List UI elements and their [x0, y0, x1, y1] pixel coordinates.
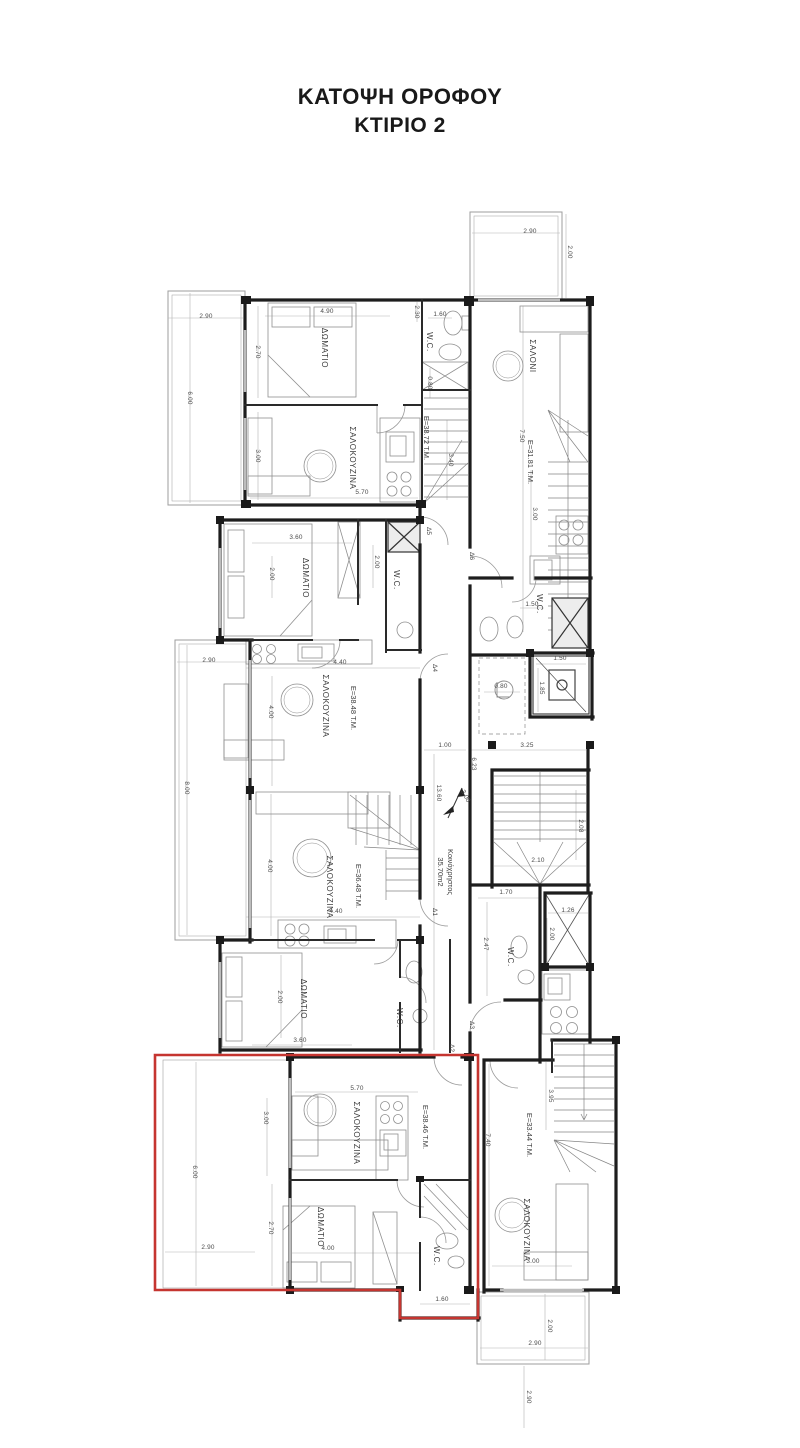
couch [224, 684, 284, 760]
apt3-area-label: Ε=38.48 Τ.Μ. [349, 686, 358, 730]
dim-label: 4.40 [329, 908, 342, 915]
door-label: Δ1 [431, 908, 438, 916]
plan-text-labels: ΔΩΜΑΤΙΟΣΑΛΟΚΟΥΖΙΝΑW.C.Ε=38.72 Τ.Μ.ΣΑΛΟΝΙ… [183, 228, 584, 1404]
table [281, 684, 313, 716]
apt1-wc-label: W.C. [425, 332, 434, 352]
dim-label: 13.60 [435, 785, 442, 802]
dim-label: 1.60 [435, 1296, 448, 1303]
dim-label: 2.00 [276, 990, 283, 1003]
walls-exterior [220, 298, 617, 1320]
dim-label: 3.60 [293, 1037, 306, 1044]
closet [338, 522, 360, 598]
dim-label: 2.90 [199, 313, 212, 320]
kitchen [380, 418, 420, 502]
dim-label: 1.26 [561, 907, 574, 914]
dim-label: 2.08 [577, 819, 584, 832]
dim-label: 3.95 [547, 1089, 554, 1102]
bed [268, 303, 356, 397]
apt5-bedroom-label: ΔΩΜΑΤΙΟ [316, 1207, 325, 1247]
dim-label: 3.00 [526, 1258, 539, 1265]
apt2-area-label: Ε=31.81 Τ.Μ. [526, 440, 535, 484]
dim-label: 2.90 [525, 1390, 532, 1403]
apt4-bedroom-label: ΔΩΜΑΤΙΟ [299, 979, 308, 1019]
dim-label: 2.00 [548, 927, 555, 940]
dim-label: 4.40 [333, 659, 346, 666]
dim-label: 2.90 [201, 1244, 214, 1251]
dim-label: 6.00 [191, 1165, 198, 1178]
dim-label: 2.10 [531, 857, 544, 864]
dim-label: 4.00 [266, 859, 273, 872]
table [304, 1094, 336, 1126]
dim-label: 3.00 [262, 1111, 269, 1124]
dim-label: 2.90 [528, 1340, 541, 1347]
apt3-living-label: ΣΑΛΟΚΟΥΖΙΝΑ [321, 675, 330, 738]
toilet [480, 617, 498, 641]
couch [524, 1184, 588, 1280]
dim-label: 2.00 [566, 245, 573, 258]
dim-label: 3.40 [447, 453, 454, 466]
kitchen [542, 970, 590, 1034]
sink [518, 970, 534, 984]
dim-label: 4.00 [321, 1245, 334, 1252]
dim-label: 8.00 [183, 781, 190, 794]
dim-label: 3.25 [520, 742, 533, 749]
accessible-wc-zone [479, 658, 525, 734]
door-label: Δ5 [425, 527, 432, 535]
dim-label: 1.70 [499, 889, 512, 896]
dim-label: 1.60 [433, 311, 446, 318]
apt1-area-label: Ε=38.72 Τ.Μ. [422, 416, 431, 460]
dim-label: 2.90 [202, 657, 215, 664]
floor-plan-sheet: ΚΑΤΟΨΗ ΟΡΟΦΟΥ ΚΤΙΡΙΟ 2 [0, 0, 800, 1448]
dim-label: 2.70 [254, 345, 261, 358]
apt6-wc-label: W.C. [506, 947, 515, 967]
closet [373, 1212, 397, 1284]
floor-plan-drawing: ΔΩΜΑΤΙΟΣΑΛΟΚΟΥΖΙΝΑW.C.Ε=38.72 Τ.Μ.ΣΑΛΟΝΙ… [0, 0, 800, 1448]
toilet [444, 311, 470, 335]
sink [439, 344, 461, 360]
dim-label: 2.00 [546, 1319, 553, 1332]
dim-label: 2.70 [267, 1221, 274, 1234]
dim-label: 2.30 [413, 305, 420, 318]
dim-label: 2.47 [482, 937, 489, 950]
apt1-living-label: ΣΑΛΟΚΟΥΖΙΝΑ [348, 427, 357, 490]
dim-label: 3.00 [254, 449, 261, 462]
dim-label: 1.85 [538, 681, 545, 694]
dim-label: 3.00 [531, 507, 538, 520]
door-label: Δ2 [448, 1044, 455, 1052]
common-area-value-label: 35.70m2 [436, 857, 445, 886]
couch [256, 792, 390, 828]
dim-label: 6.23 [470, 757, 477, 770]
common-area-name-label: Κοινόχρηστος [446, 849, 455, 895]
kitchen [530, 516, 588, 584]
table [493, 351, 523, 381]
kitchen [278, 920, 396, 948]
sink [507, 616, 523, 638]
bed [222, 953, 302, 1047]
apt3-bedroom-label: ΔΩΜΑΤΙΟ [301, 558, 310, 598]
apt6-area-label: Ε=33.44 Τ.Μ. [525, 1113, 534, 1157]
apt4-area-label: Ε=36.48 Τ.Μ. [354, 864, 363, 908]
dim-label: 1.00 [438, 742, 451, 749]
apt2-living-label: ΣΑΛΟΝΙ [528, 339, 537, 372]
dim-label: 4.90 [320, 308, 333, 315]
dim-label: 4.00 [267, 705, 274, 718]
table [304, 450, 336, 482]
dim-label: 3.60 [289, 534, 302, 541]
dim-label: 5.70 [350, 1085, 363, 1092]
door-label: Δ6 [468, 552, 475, 560]
shower [388, 522, 588, 648]
kitchen [246, 640, 372, 664]
dim-label: 5.70 [355, 489, 368, 496]
sink [397, 622, 413, 638]
dim-label: 7.40 [484, 1133, 491, 1146]
balcony-outlines [163, 212, 589, 1364]
dim-label: 7.50 [518, 429, 525, 442]
dim-label: 1.50 [525, 601, 538, 608]
apt1-bedroom-label: ΔΩΜΑΤΙΟ [320, 328, 329, 368]
door-label: Δ4 [431, 664, 438, 672]
apt5-area-label: Ε=38.46 Τ.Μ. [421, 1105, 430, 1149]
apt4-wc-label: W.C. [395, 1008, 404, 1028]
apt6-living-label: ΣΑΛΟΚΟΥΖΙΝΑ [522, 1199, 531, 1262]
door-label: Δ3 [468, 1021, 475, 1029]
dim-label: 2.00 [373, 555, 380, 568]
dim-label: 1.50 [553, 655, 566, 662]
kitchen [376, 1096, 408, 1180]
shower [424, 1184, 468, 1230]
apt3-wc-label: W.C. [392, 570, 401, 590]
dim-label: 2.90 [523, 228, 536, 235]
apt5-wc-label: W.C. [432, 1246, 441, 1266]
apt5-living-label: ΣΑΛΟΚΟΥΖΙΝΑ [352, 1102, 361, 1165]
dim-label: 0.80 [426, 376, 433, 389]
sink [448, 1256, 464, 1268]
dim-label: 6.00 [186, 391, 193, 404]
couch [292, 1096, 388, 1170]
dim-label: 2.00 [268, 567, 275, 580]
dim-label: 0.80 [494, 683, 507, 690]
